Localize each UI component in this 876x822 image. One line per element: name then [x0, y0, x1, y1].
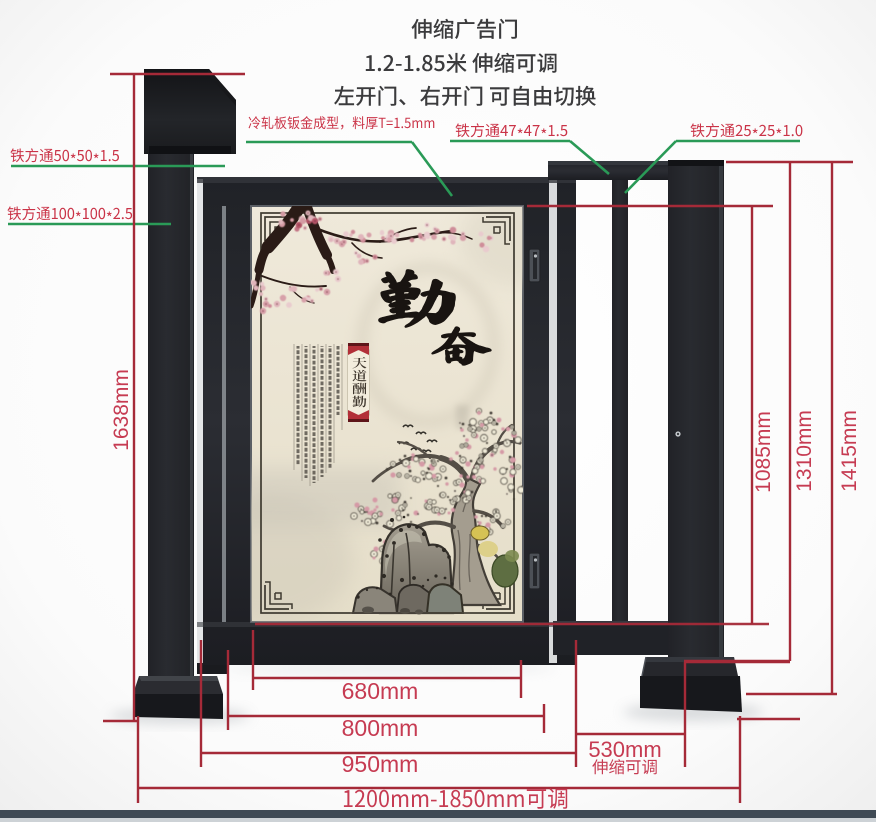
svg-text:1310mm: 1310mm: [793, 410, 816, 492]
svg-text:1085mm: 1085mm: [752, 411, 775, 493]
svg-text:530mm: 530mm: [588, 737, 661, 762]
svg-text:680mm: 680mm: [342, 678, 419, 704]
svg-text:800mm: 800mm: [342, 715, 419, 741]
svg-text:1415mm: 1415mm: [838, 410, 861, 492]
svg-text:1638mm: 1638mm: [110, 369, 133, 451]
svg-text:950mm: 950mm: [342, 751, 419, 777]
